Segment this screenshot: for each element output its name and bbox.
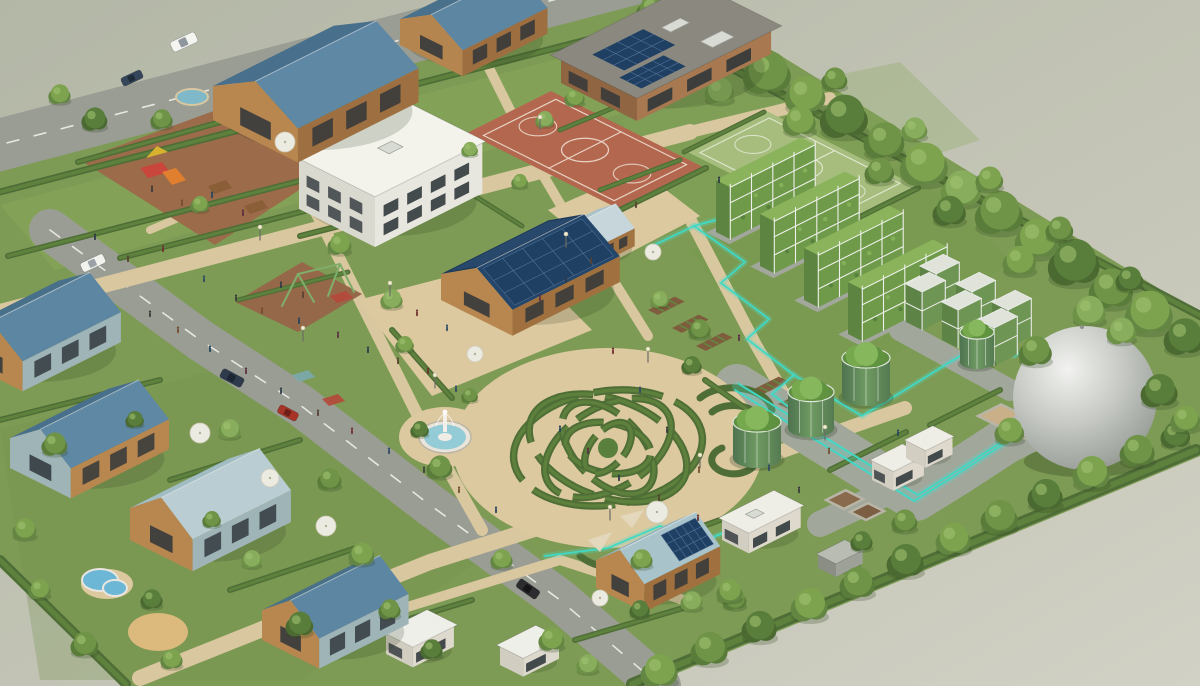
- eco-district-render: [0, 0, 1200, 686]
- scene-svg: [0, 0, 1200, 686]
